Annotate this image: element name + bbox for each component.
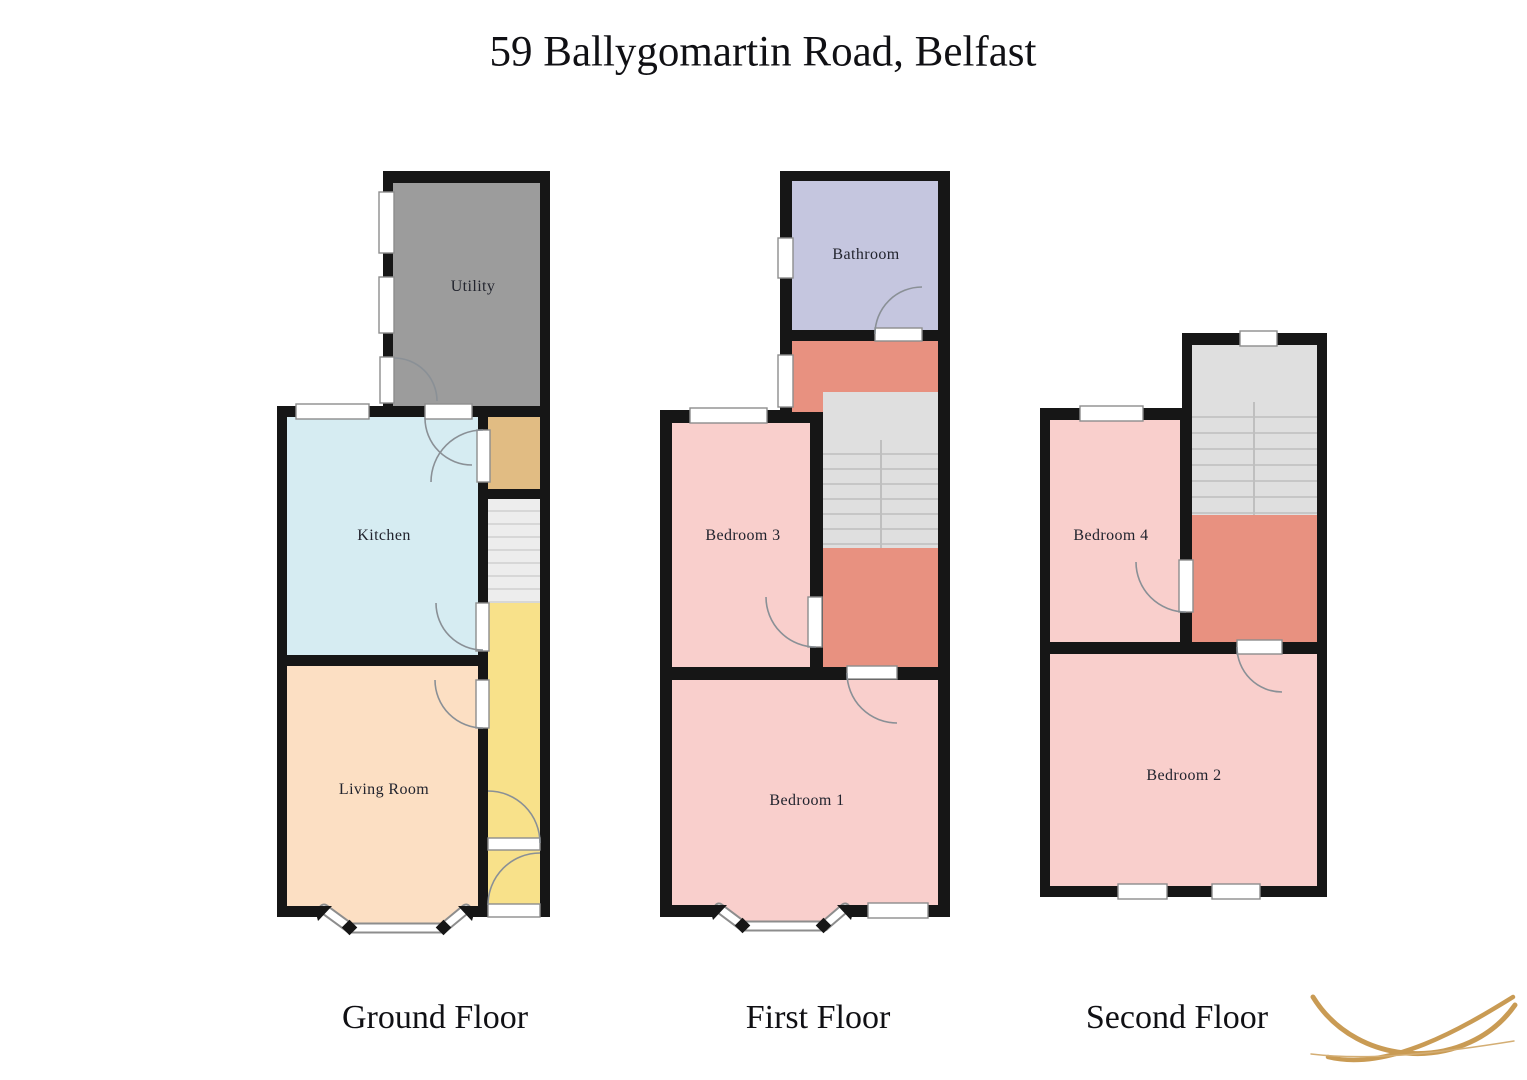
wall	[540, 171, 550, 917]
wall	[660, 410, 672, 917]
wall	[660, 667, 950, 680]
wall	[848, 905, 950, 917]
stairs-first	[823, 392, 938, 548]
room-label-bedroom1: Bedroom 1	[769, 792, 844, 810]
floor-label-first: First Floor	[746, 999, 891, 1037]
wall	[478, 666, 488, 906]
wall	[1182, 333, 1192, 420]
wall	[478, 489, 550, 499]
room-landing-second	[1192, 515, 1317, 642]
wall	[277, 655, 488, 666]
wall	[468, 906, 550, 917]
wall	[780, 171, 792, 423]
wall	[810, 410, 823, 667]
wall	[1317, 333, 1327, 897]
stair-divider	[1253, 402, 1255, 515]
room-label-utility: Utility	[451, 278, 496, 296]
brand-logo	[1303, 980, 1521, 1076]
page-title: 59 Ballygomartin Road, Belfast	[490, 28, 1037, 77]
room-label-bathroom: Bathroom	[832, 246, 899, 264]
wall	[938, 171, 950, 917]
stair-divider	[880, 440, 882, 548]
wall	[1040, 408, 1192, 420]
wall	[277, 906, 320, 917]
room-label-bedroom3: Bedroom 3	[705, 527, 780, 545]
room-landing-lower	[823, 548, 938, 667]
room-label-kitchen: Kitchen	[357, 527, 410, 545]
wall	[383, 171, 393, 417]
stairs-second	[1192, 345, 1317, 515]
room-label-living: Living Room	[339, 781, 429, 799]
room-bedroom3	[672, 423, 810, 667]
wall	[1182, 333, 1327, 345]
wall	[1180, 408, 1192, 654]
wall	[780, 171, 950, 181]
room-hallway	[488, 603, 540, 906]
wall	[1040, 886, 1327, 897]
wall	[478, 417, 488, 655]
room-label-bedroom4: Bedroom 4	[1073, 527, 1148, 545]
bay-window	[709, 905, 855, 933]
floor-label-ground: Ground Floor	[342, 999, 528, 1037]
wall	[780, 330, 938, 341]
wall	[277, 406, 550, 417]
floor-label-second: Second Floor	[1086, 999, 1268, 1037]
stairs-ground	[488, 499, 540, 603]
wall	[383, 171, 550, 183]
floorplan-page: 59 Ballygomartin Road, Belfast Utility K…	[0, 0, 1527, 1080]
bay-window	[314, 906, 476, 935]
wall	[660, 905, 715, 917]
room-label-bedroom2: Bedroom 2	[1146, 767, 1221, 785]
room-vestibule	[488, 417, 540, 489]
stair-treads	[488, 499, 540, 603]
wall	[1040, 642, 1327, 654]
